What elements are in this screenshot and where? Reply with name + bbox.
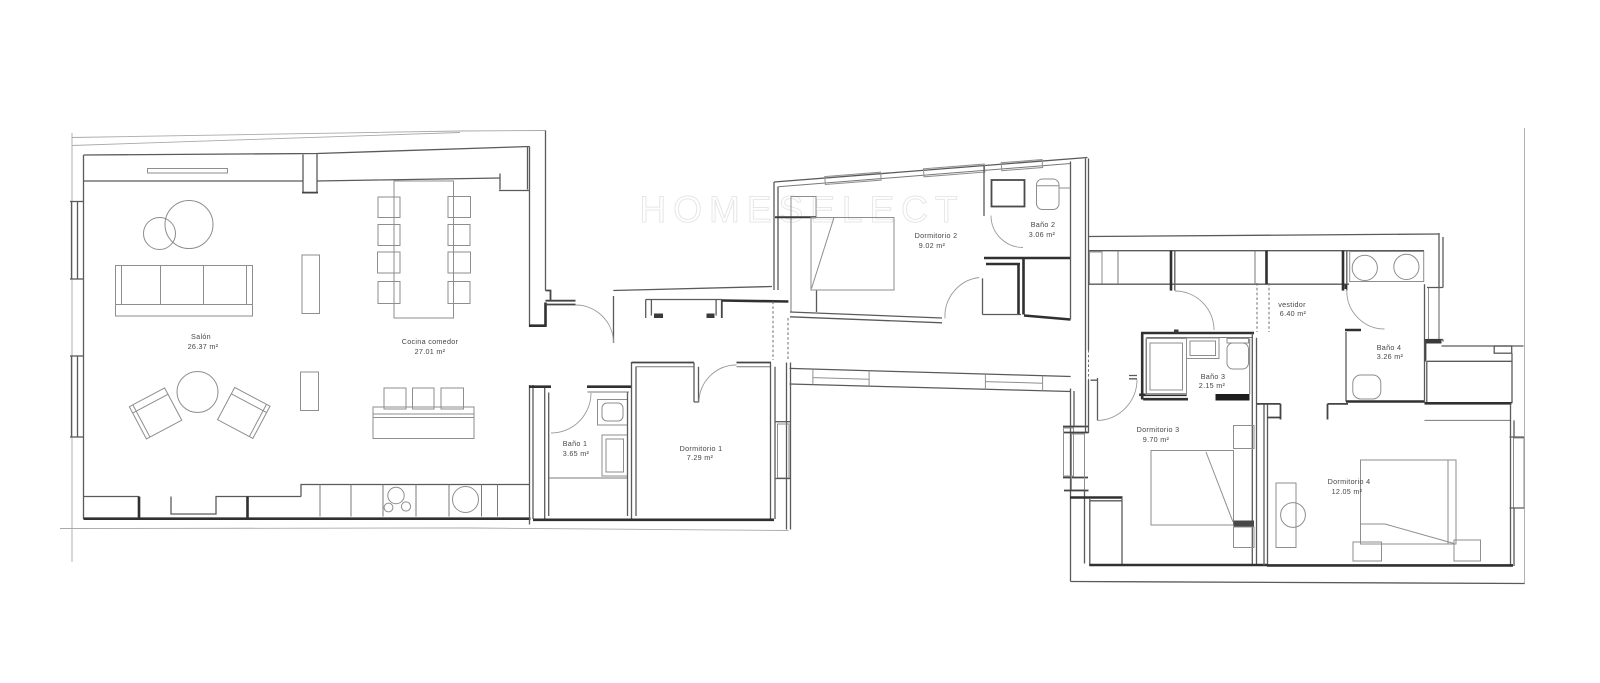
svg-text:26.37 m²: 26.37 m² [188, 342, 219, 351]
svg-text:6.40 m²: 6.40 m² [1280, 309, 1307, 318]
svg-text:HOMESELECT: HOMESELECT [640, 189, 965, 230]
svg-text:Cocina comedor: Cocina comedor [402, 337, 459, 346]
svg-text:Dormitorio 3: Dormitorio 3 [1137, 425, 1180, 434]
svg-text:9.70 m²: 9.70 m² [1143, 435, 1170, 444]
svg-text:Dormitorio 2: Dormitorio 2 [915, 231, 958, 240]
svg-text:Baño 1: Baño 1 [563, 439, 588, 448]
svg-text:Salón: Salón [191, 332, 211, 341]
svg-text:Baño 2: Baño 2 [1031, 220, 1056, 229]
svg-text:vestidor: vestidor [1278, 300, 1306, 309]
svg-text:9.02 m²: 9.02 m² [919, 241, 946, 250]
svg-text:2.15 m²: 2.15 m² [1199, 381, 1226, 390]
svg-text:3.65 m²: 3.65 m² [563, 449, 590, 458]
svg-text:27.01 m²: 27.01 m² [415, 347, 446, 356]
svg-text:3.06 m²: 3.06 m² [1029, 230, 1056, 239]
svg-text:7.29 m²: 7.29 m² [687, 453, 714, 462]
svg-text:Baño 4: Baño 4 [1377, 343, 1402, 352]
svg-text:3.26 m²: 3.26 m² [1377, 352, 1404, 361]
svg-text:Dormitorio 1: Dormitorio 1 [680, 444, 723, 453]
svg-text:Dormitorio 4: Dormitorio 4 [1328, 477, 1371, 486]
svg-text:12.05 m²: 12.05 m² [1332, 487, 1363, 496]
svg-text:Baño 3: Baño 3 [1201, 372, 1226, 381]
